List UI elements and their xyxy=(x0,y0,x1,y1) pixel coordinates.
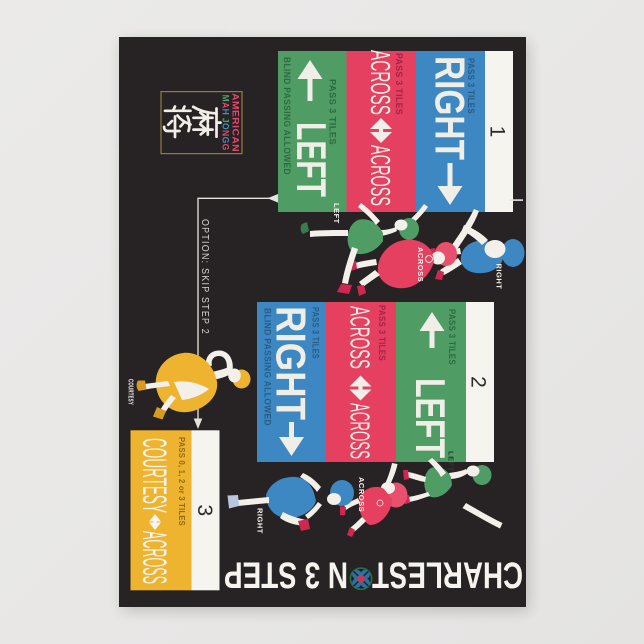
svg-text:RIGHT: RIGHT xyxy=(495,264,504,290)
svg-text:ACROSS: ACROSS xyxy=(365,50,396,115)
svg-text:ACROSS: ACROSS xyxy=(365,145,396,206)
svg-text:LEFT: LEFT xyxy=(288,122,335,197)
svg-text:COURTESY: COURTESY xyxy=(135,438,173,513)
svg-text:PASS 3 TILES: PASS 3 TILES xyxy=(376,305,387,361)
svg-text:LEFT: LEFT xyxy=(407,378,454,458)
svg-text:CHARLEST: CHARLEST xyxy=(372,554,523,596)
svg-text:MAH JONGG: MAH JONGG xyxy=(221,95,231,151)
svg-text:RIGHT: RIGHT xyxy=(268,306,315,420)
svg-text:3: 3 xyxy=(193,504,216,516)
svg-text:ACROSS: ACROSS xyxy=(345,306,376,369)
svg-text:OPTION: SKIP STEP 2: OPTION: SKIP STEP 2 xyxy=(199,219,211,335)
svg-text:1: 1 xyxy=(486,126,509,138)
svg-text:AMERICAN: AMERICAN xyxy=(231,93,241,152)
svg-text:ACROSS: ACROSS xyxy=(135,531,173,584)
svg-text:2: 2 xyxy=(467,376,490,388)
svg-text:COURTESY: COURTESY xyxy=(127,379,134,405)
svg-text:LEFT: LEFT xyxy=(332,203,341,224)
svg-text:RIGHT: RIGHT xyxy=(256,508,265,534)
svg-text:ACROSS: ACROSS xyxy=(416,247,425,282)
svg-text:ACROSS: ACROSS xyxy=(345,403,376,459)
svg-text:ACROSS: ACROSS xyxy=(357,477,366,512)
svg-text:PASS 0, 1, 2 or 3 TILES: PASS 0, 1, 2 or 3 TILES xyxy=(177,437,187,526)
svg-text:LEFT: LEFT xyxy=(447,451,456,472)
svg-text:PASS 3 TILES: PASS 3 TILES xyxy=(446,309,457,365)
svg-text:N 3 STEP: N 3 STEP xyxy=(224,554,348,596)
svg-text:RIGHT: RIGHT xyxy=(427,56,474,160)
